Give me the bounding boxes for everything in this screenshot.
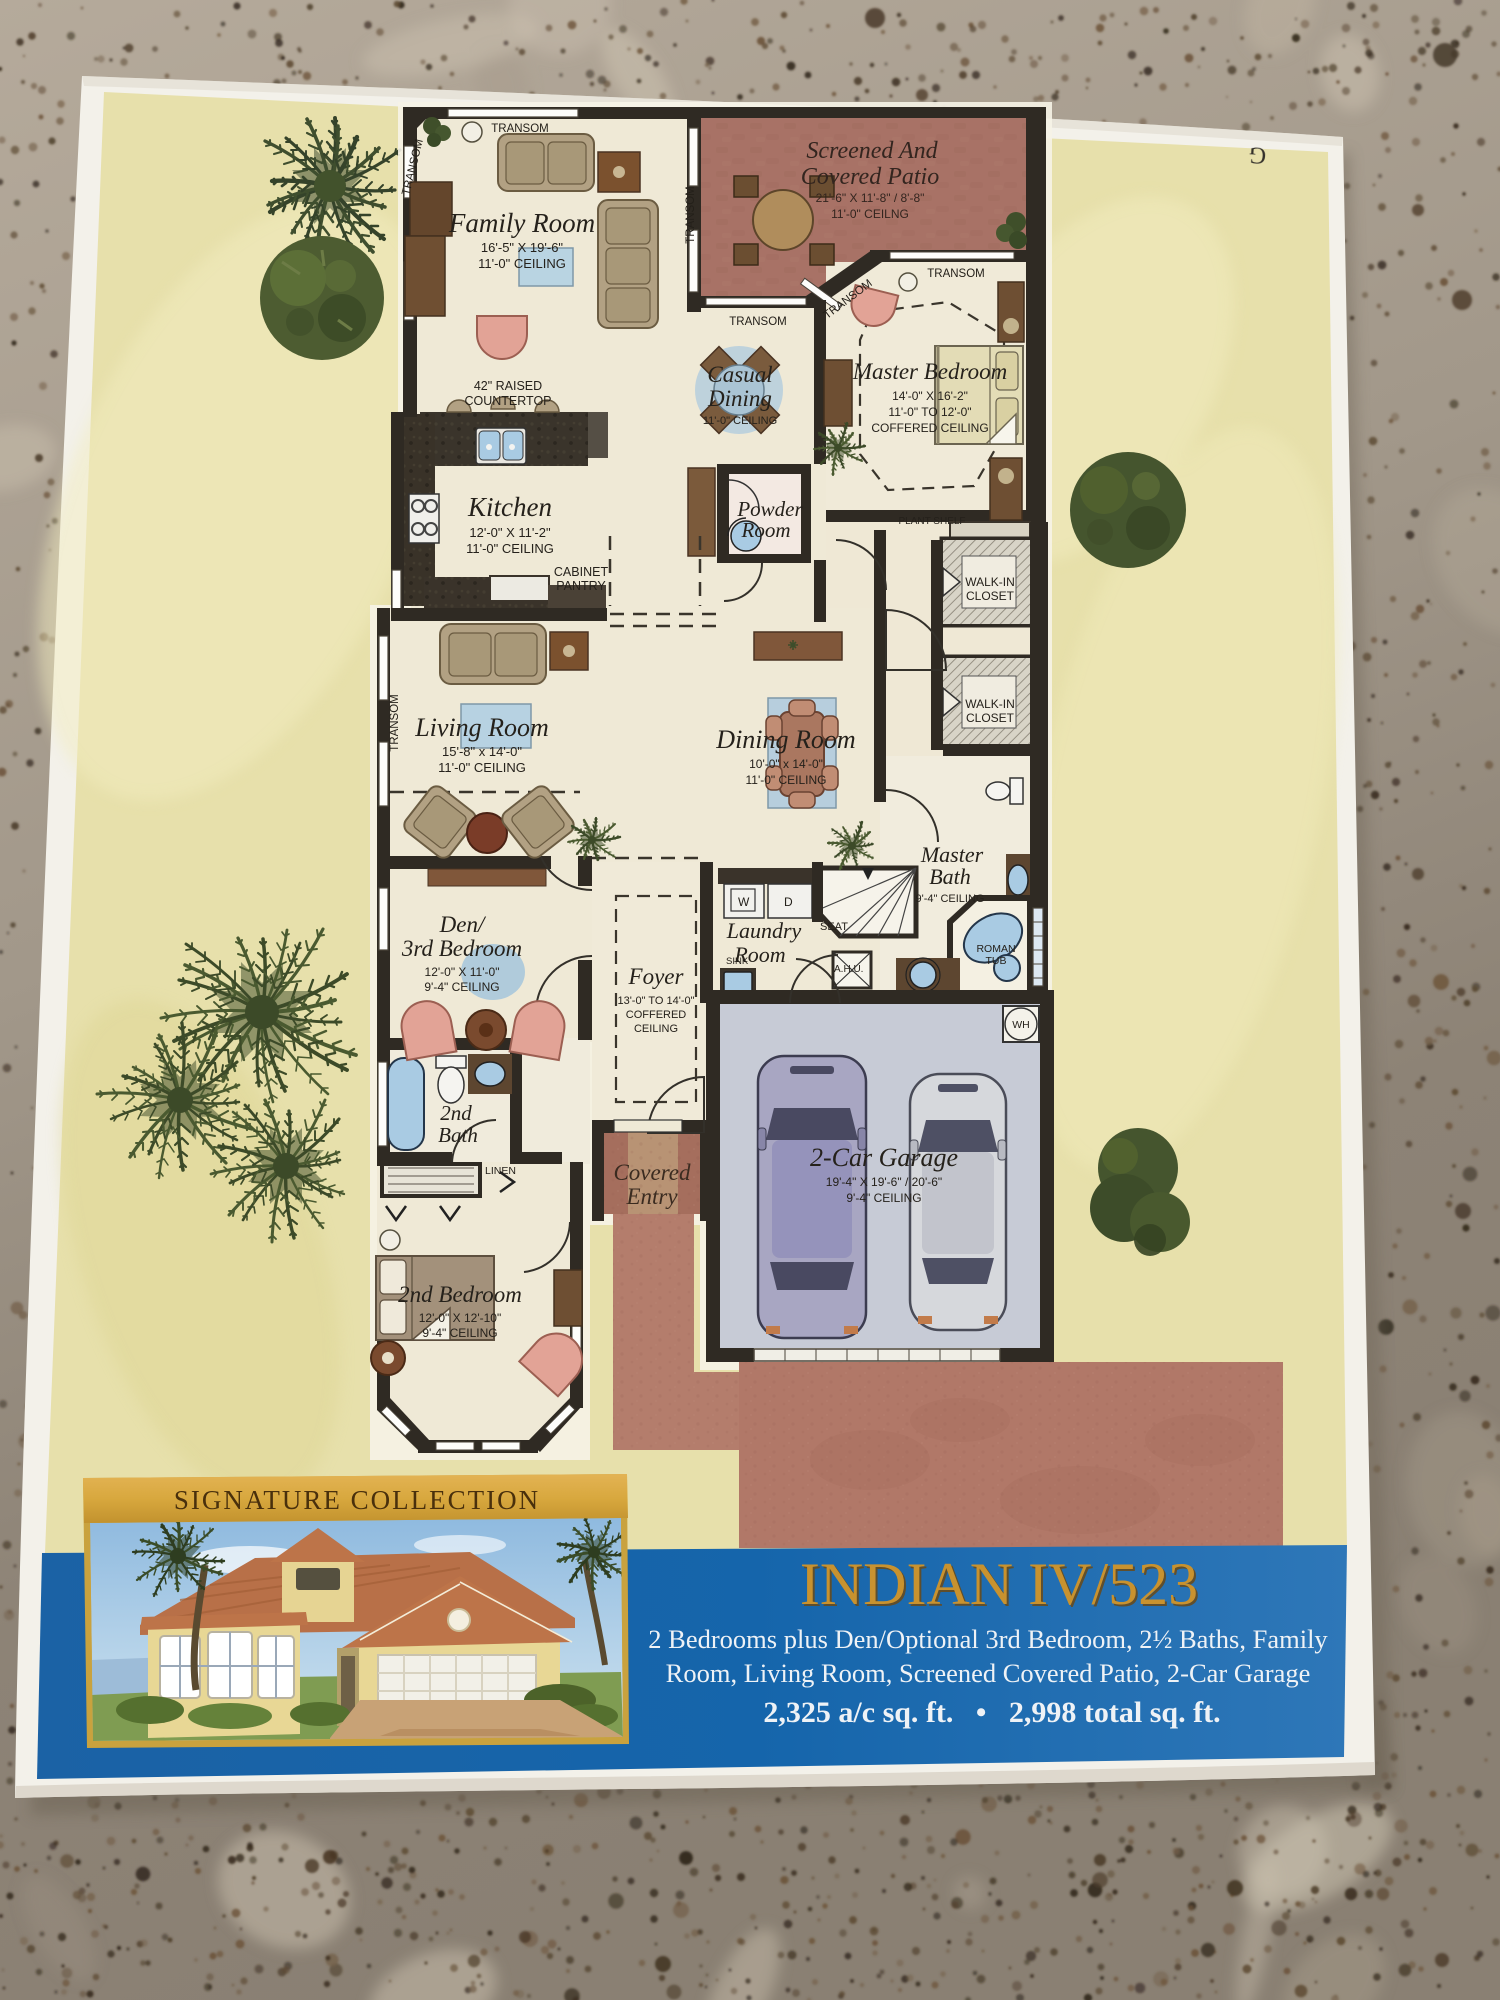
svg-text:19'-4" X 19'-6" / 20'-6": 19'-4" X 19'-6" / 20'-6" — [826, 1175, 942, 1189]
svg-text:Dining: Dining — [707, 386, 772, 411]
svg-text:2 Bedrooms plus Den/Optional 3: 2 Bedrooms plus Den/Optional 3rd Bedroom… — [648, 1624, 1328, 1654]
svg-text:Screened And: Screened And — [806, 138, 938, 164]
svg-text:2nd: 2nd — [440, 1101, 472, 1125]
svg-text:42" RAISED: 42" RAISED — [474, 379, 542, 393]
svg-text:PANTRY: PANTRY — [556, 579, 606, 593]
svg-text:SINK: SINK — [726, 956, 749, 967]
svg-text:A.H.U.: A.H.U. — [834, 964, 863, 975]
svg-text:CABINET: CABINET — [554, 565, 609, 579]
svg-text:ROMAN: ROMAN — [976, 943, 1015, 955]
svg-text:11'-0" CEILING: 11'-0" CEILING — [466, 541, 554, 556]
svg-text:14'-0" X 16'-2": 14'-0" X 16'-2" — [892, 389, 968, 403]
svg-text:10'-0" x 14'-0": 10'-0" x 14'-0" — [749, 757, 823, 771]
svg-text:9'-4" CEILING: 9'-4" CEILING — [422, 1326, 497, 1340]
svg-text:CLOSET: CLOSET — [966, 589, 1015, 603]
svg-text:TRANSOM: TRANSOM — [491, 123, 549, 135]
svg-text:13'-0" TO 14'-0": 13'-0" TO 14'-0" — [617, 995, 694, 1007]
svg-text:9'-4" CEILING: 9'-4" CEILING — [916, 893, 985, 905]
svg-text:Living Room: Living Room — [414, 713, 549, 742]
svg-text:Family Room: Family Room — [448, 208, 595, 238]
svg-text:11'-0" CEILING: 11'-0" CEILING — [745, 773, 826, 787]
svg-text:Kitchen: Kitchen — [467, 492, 552, 522]
svg-text:WALK-IN: WALK-IN — [965, 575, 1015, 589]
svg-text:WH: WH — [1012, 1019, 1030, 1031]
svg-text:Dining Room: Dining Room — [715, 725, 855, 754]
svg-text:TRANSOM: TRANSOM — [389, 694, 401, 752]
svg-text:11'-0" TO 12'-0": 11'-0" TO 12'-0" — [888, 405, 971, 419]
svg-text:Bath: Bath — [929, 864, 971, 889]
svg-text:11'-0" CEILING: 11'-0" CEILING — [438, 760, 526, 775]
svg-text:12'-0" X 12'-10": 12'-0" X 12'-10" — [419, 1311, 501, 1325]
svg-text:21'-6" X 11'-8" / 8'-8": 21'-6" X 11'-8" / 8'-8" — [816, 191, 925, 205]
svg-text:16'-5" X 19'-6": 16'-5" X 19'-6" — [481, 240, 564, 255]
svg-text:G: G — [1248, 141, 1267, 168]
svg-text:TRANSOM: TRANSOM — [729, 316, 787, 328]
svg-text:INDIAN IV/523: INDIAN IV/523 — [800, 1551, 1198, 1617]
svg-text:TUB: TUB — [986, 955, 1007, 967]
svg-text:PLANT SHELF: PLANT SHELF — [898, 516, 965, 527]
svg-text:15'-8" x 14'-0": 15'-8" x 14'-0" — [442, 744, 522, 759]
svg-text:Room, Living Room, Screened Co: Room, Living Room, Screened Covered Pati… — [666, 1658, 1311, 1688]
svg-text:CLOSET: CLOSET — [966, 711, 1015, 725]
svg-text:Covered: Covered — [613, 1160, 691, 1185]
svg-text:Den/: Den/ — [439, 912, 487, 937]
svg-text:SEAT: SEAT — [820, 921, 848, 933]
svg-text:9'-4" CEILING: 9'-4" CEILING — [424, 980, 499, 994]
svg-text:Master Bedroom: Master Bedroom — [852, 359, 1007, 384]
svg-text:W: W — [738, 895, 750, 909]
svg-text:Room: Room — [741, 518, 791, 542]
svg-text:2,325 a/c sq. ft. • 2,998: 2,325 a/c sq. ft. • 2,998 total sq. ft. — [763, 1696, 1220, 1729]
svg-text:Foyer: Foyer — [628, 964, 685, 989]
svg-text:TRANSOM: TRANSOM — [927, 268, 985, 280]
svg-text:2-Car Garage: 2-Car Garage — [810, 1143, 958, 1172]
svg-text:D: D — [784, 895, 793, 909]
svg-text:COUNTERTOP: COUNTERTOP — [464, 394, 551, 408]
svg-text:11'-0" CEILING: 11'-0" CEILING — [703, 415, 777, 427]
svg-text:11'-0" CEILING: 11'-0" CEILING — [478, 256, 566, 271]
svg-text:WALK-IN: WALK-IN — [965, 697, 1015, 711]
svg-text:12'-0" X 11'-0": 12'-0" X 11'-0" — [425, 965, 500, 979]
svg-text:Bath: Bath — [438, 1123, 478, 1147]
svg-text:Laundry: Laundry — [726, 918, 802, 943]
svg-text:COFFERED: COFFERED — [626, 1009, 687, 1021]
svg-text:Entry: Entry — [625, 1184, 678, 1209]
svg-text:3rd Bedroom: 3rd Bedroom — [401, 936, 522, 961]
svg-text:LINEN: LINEN — [485, 1165, 516, 1177]
svg-text:SIGNATURE COLLECTION: SIGNATURE COLLECTION — [174, 1485, 540, 1515]
svg-text:12'-0" X 11'-2": 12'-0" X 11'-2" — [469, 525, 551, 540]
svg-text:COFFERED CEILING: COFFERED CEILING — [871, 421, 988, 435]
svg-text:TRANSOM: TRANSOM — [685, 186, 697, 244]
svg-text:CEILING: CEILING — [634, 1023, 678, 1035]
svg-text:Casual: Casual — [707, 362, 772, 387]
svg-text:11'-0" CEILNG: 11'-0" CEILNG — [831, 207, 909, 221]
svg-text:9'-4" CEILING: 9'-4" CEILING — [846, 1191, 921, 1205]
svg-text:Covered Patio: Covered Patio — [801, 164, 939, 190]
svg-text:2nd Bedroom: 2nd Bedroom — [398, 1282, 522, 1307]
